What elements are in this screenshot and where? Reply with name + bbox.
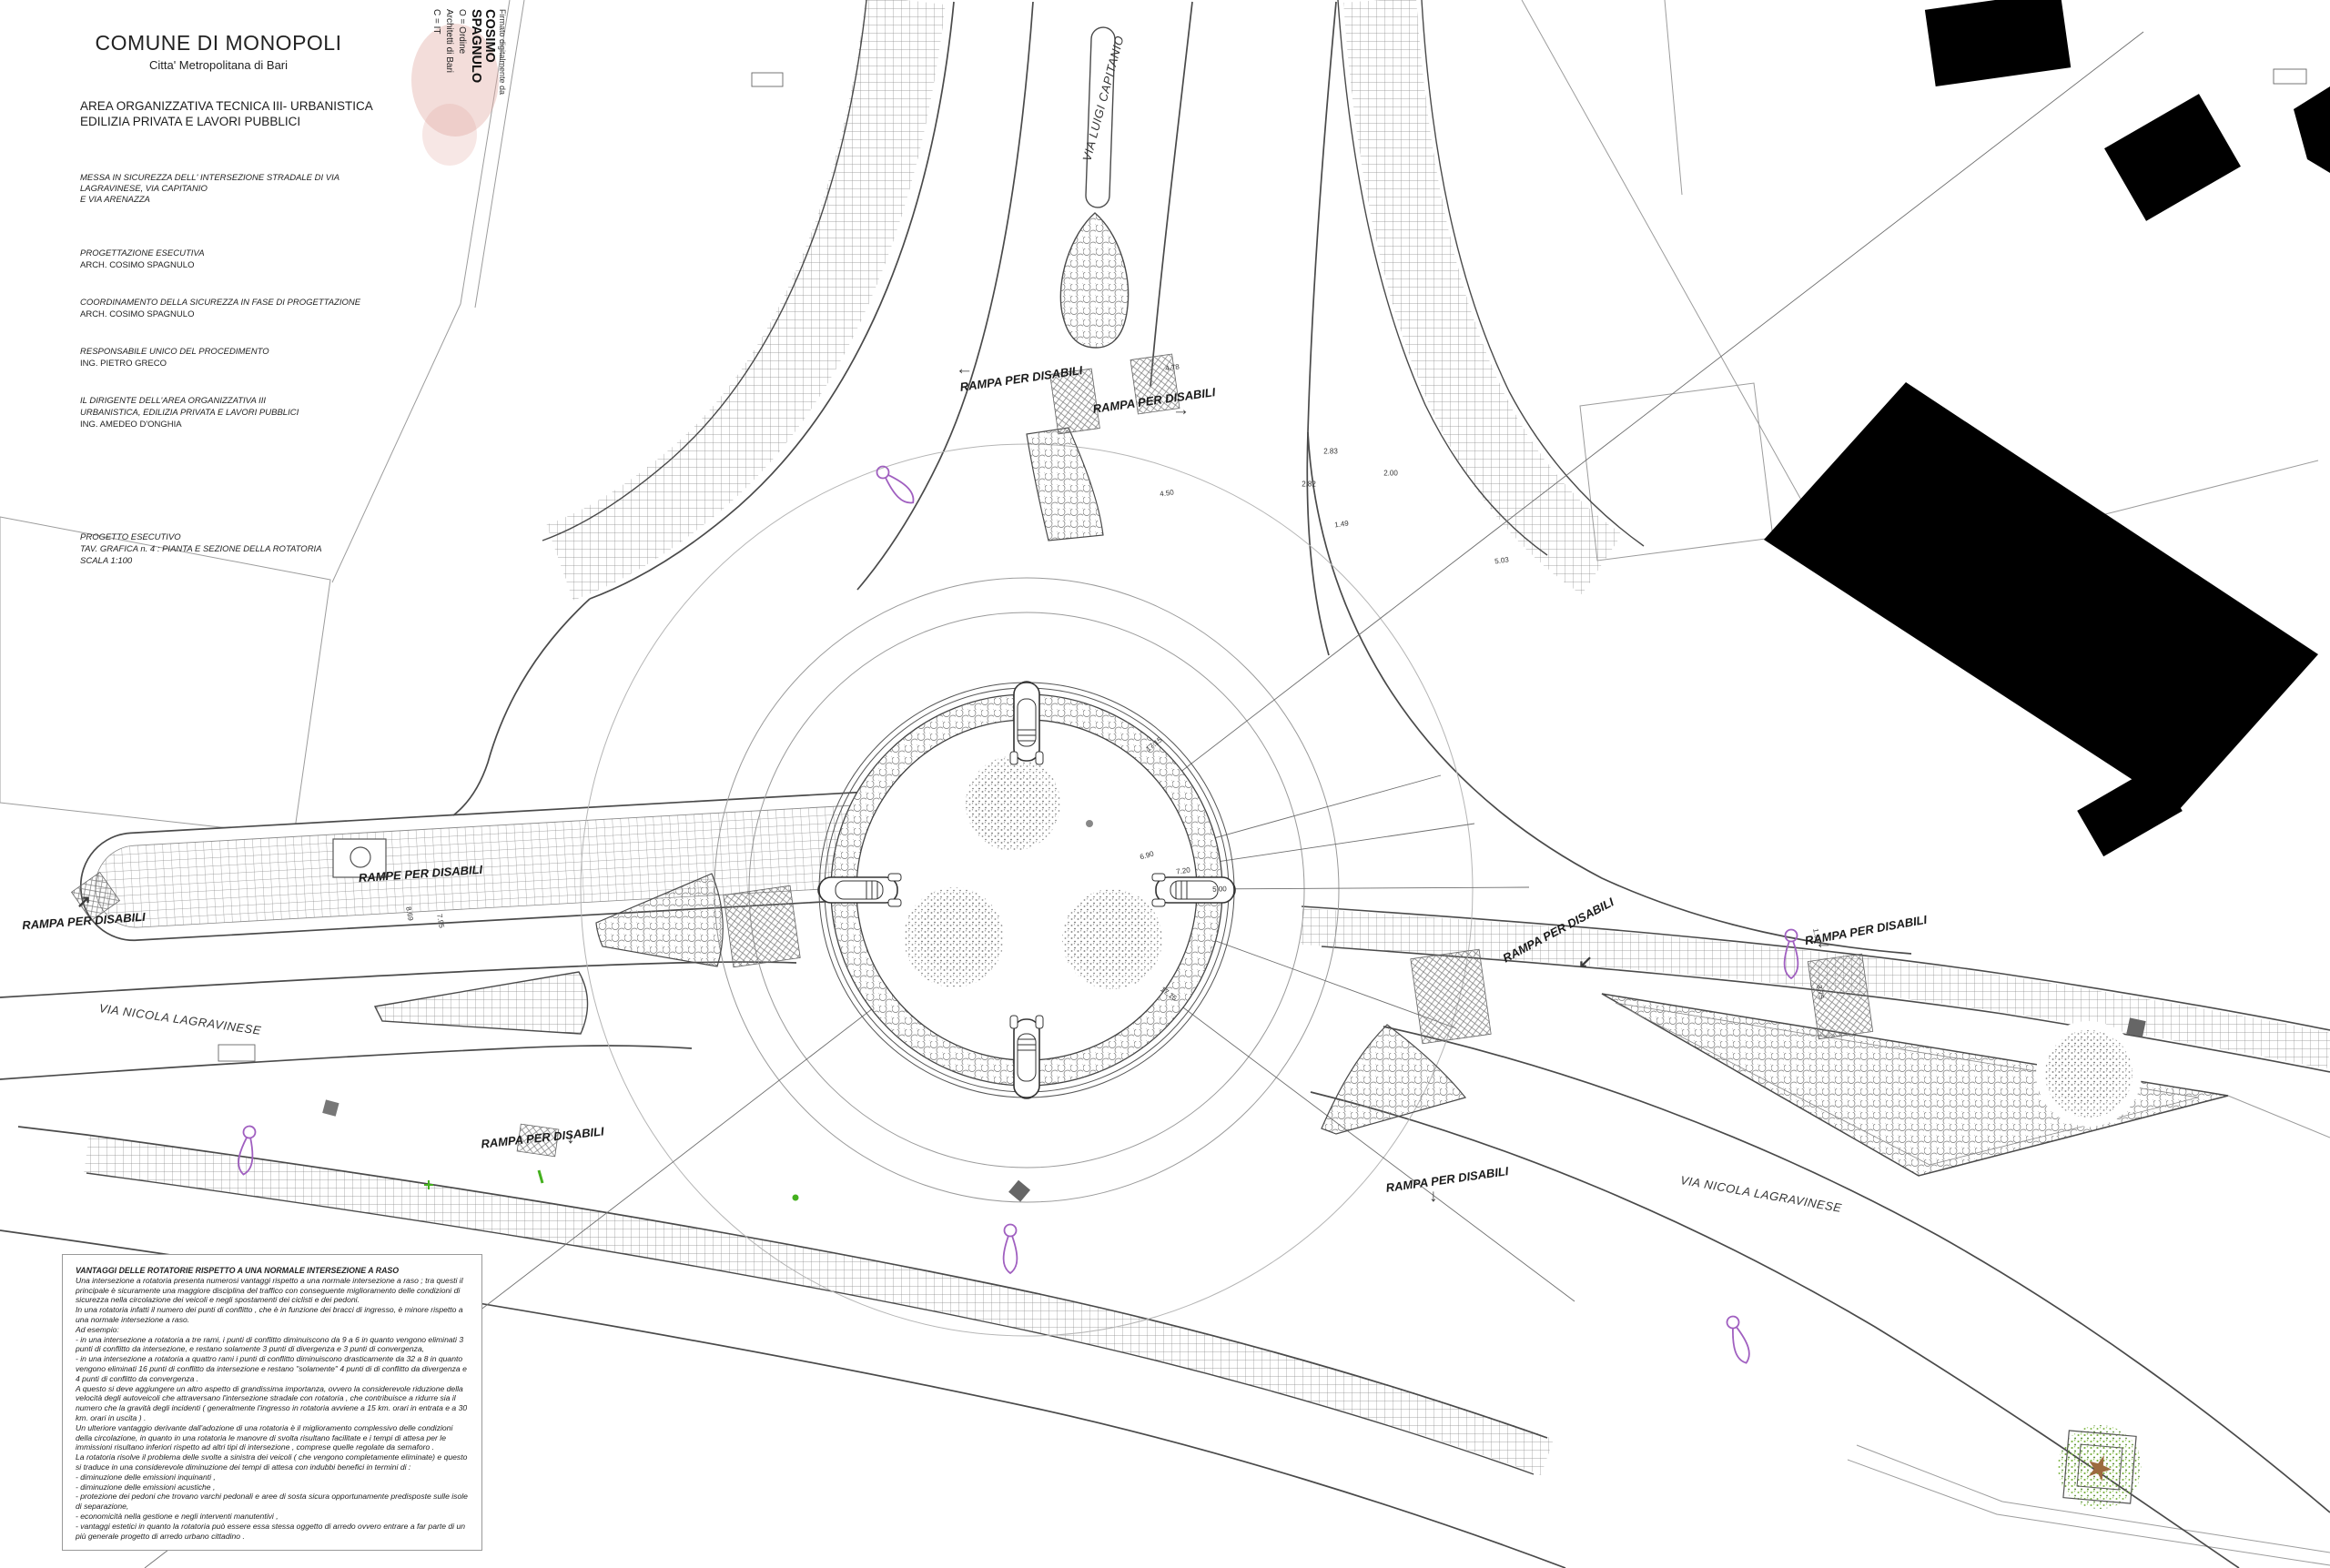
stamp-name-line2: SPAGNULO	[469, 9, 482, 162]
stamp-name-line1: COSIMO	[482, 9, 496, 162]
notes-paragraph: - diminuzione delle emissioni acustiche …	[76, 1482, 469, 1492]
notes-paragraph: - in una intersezione a rotatoria a tre …	[76, 1335, 469, 1355]
sidewalk-areas	[18, 0, 2330, 1474]
stamp-detail3: C = IT	[431, 9, 441, 162]
notes-paragraph: - economicità nella gestione e negli int…	[76, 1512, 469, 1522]
notes-paragraph: - diminuzione delle emissioni inquinanti…	[76, 1472, 469, 1482]
role-block: IL DIRIGENTE DELL'AREA ORGANIZZATIVA III…	[80, 395, 360, 430]
notes-paragraphs: Una intersezione a rotatoria presenta nu…	[76, 1276, 469, 1542]
notes-paragraph: La rotatoria risolve il problema delle s…	[76, 1452, 469, 1472]
notes-paragraph: In una rotatoria infatti il numero dei p…	[76, 1305, 469, 1325]
notes-paragraph: - protezione dei pedoni che trovano varc…	[76, 1492, 469, 1512]
drawing-info-line3: SCALA 1:100	[80, 555, 322, 567]
project-description: MESSA IN SICUREZZA DELL' INTERSEZIONE ST…	[80, 173, 380, 206]
stamp-detail2: Architetti di Bari	[443, 9, 454, 162]
role-line: URBANISTICA, EDILIZIA PRIVATA E LAVORI P…	[80, 407, 360, 419]
project-description-line1: MESSA IN SICUREZZA DELL' INTERSEZIONE ST…	[80, 173, 380, 195]
project-description-line2: E VIA ARENAZZA	[80, 195, 380, 206]
page-title: COMUNE DI MONOPOLI	[0, 31, 437, 56]
digital-signature-stamp: Firmato digitalmente da COSIMO SPAGNULO …	[407, 9, 507, 162]
green-tree	[2058, 1425, 2142, 1509]
plan-sheet: VIA LUIGI CAPITANIOVIA NICOLA LAGRAVINES…	[0, 0, 2330, 1568]
page-subtitle: Citta' Metropolitana di Bari	[0, 58, 437, 72]
role-block: RESPONSABILE UNICO DEL PROCEDIMENTOING. …	[80, 346, 360, 369]
department-heading: AREA ORGANIZZATIVA TECNICA III- URBANIST…	[80, 98, 373, 129]
stamp-signed-by: Firmato digitalmente da	[498, 9, 507, 162]
notes-paragraph: Una intersezione a rotatoria presenta nu…	[76, 1276, 469, 1305]
notes-paragraph: - in una intersezione a rotatoria a quat…	[76, 1354, 469, 1383]
notes-paragraph: A questo si deve aggiungere un altro asp…	[76, 1384, 469, 1423]
black-buildings	[1764, 0, 2330, 856]
notes-paragraph: - vantaggi estetici in quanto la rotator…	[76, 1522, 469, 1542]
drawing-info-line1: PROGETTO ESECUTIVO	[80, 531, 322, 543]
role-line: ARCH. COSIMO SPAGNULO	[80, 259, 360, 271]
department-line1: AREA ORGANIZZATIVA TECNICA III- URBANIST…	[80, 98, 373, 114]
central-island	[818, 682, 1235, 1098]
department-line2: EDILIZIA PRIVATA E LAVORI PUBBLICI	[80, 114, 373, 129]
role-line: IL DIRIGENTE DELL'AREA ORGANIZZATIVA III	[80, 395, 360, 407]
role-line: ING. PIETRO GRECO	[80, 358, 360, 369]
roundabout-advantages-notes: VANTAGGI DELLE ROTATORIE RISPETTO A UNA …	[62, 1254, 482, 1551]
notes-paragraph: Un ulteriore vantaggio derivante dall'ad…	[76, 1423, 469, 1452]
stamp-detail1: O = Ordine	[456, 9, 467, 162]
drawing-info: PROGETTO ESECUTIVO TAV. GRAFICA n. 4 : P…	[80, 531, 322, 567]
role-line: RESPONSABILE UNICO DEL PROCEDIMENTO	[80, 346, 360, 358]
role-line: COORDINAMENTO DELLA SICUREZZA IN FASE DI…	[80, 297, 360, 309]
role-block: PROGETTAZIONE ESECUTIVAARCH. COSIMO SPAG…	[80, 248, 360, 271]
role-line: PROGETTAZIONE ESECUTIVA	[80, 248, 360, 259]
notes-title: VANTAGGI DELLE ROTATORIE RISPETTO A UNA …	[76, 1266, 469, 1276]
project-roles: PROGETTAZIONE ESECUTIVAARCH. COSIMO SPAG…	[80, 248, 360, 456]
drawing-info-line2: TAV. GRAFICA n. 4 : PIANTA E SEZIONE DEL…	[80, 543, 322, 555]
notes-paragraph: Ad esempio:	[76, 1325, 469, 1335]
role-line: ARCH. COSIMO SPAGNULO	[80, 309, 360, 320]
role-block: COORDINAMENTO DELLA SICUREZZA IN FASE DI…	[80, 297, 360, 320]
role-line: ING. AMEDEO D'ONGHIA	[80, 419, 360, 430]
